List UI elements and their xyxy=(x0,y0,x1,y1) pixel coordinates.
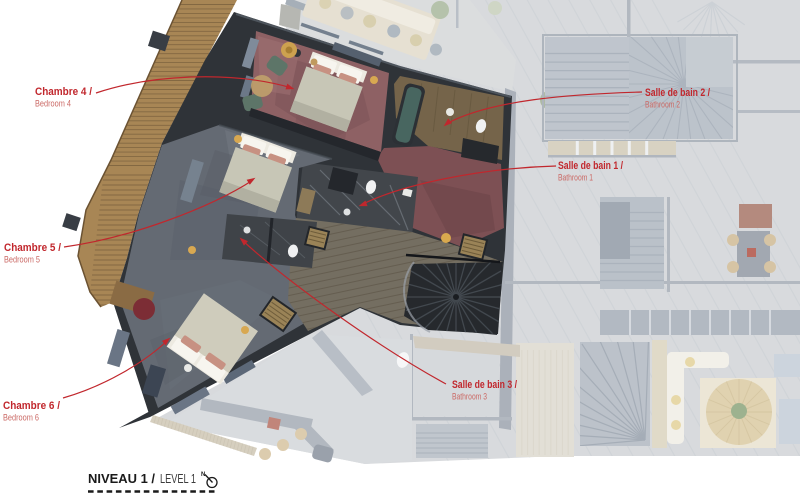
svg-text:Bathroom 1: Bathroom 1 xyxy=(558,173,593,184)
svg-text:Bathroom 2: Bathroom 2 xyxy=(645,100,680,111)
svg-text:Salle de bain 1 /: Salle de bain 1 / xyxy=(558,160,623,172)
svg-text:LEVEL 1: LEVEL 1 xyxy=(160,471,196,486)
svg-text:Bedroom 6: Bedroom 6 xyxy=(3,413,39,424)
svg-text:Bathroom 3: Bathroom 3 xyxy=(452,392,487,403)
svg-text:Bedroom 5: Bedroom 5 xyxy=(4,255,40,266)
svg-text:Bedroom 4: Bedroom 4 xyxy=(35,99,71,110)
svg-text:Chambre 5 /: Chambre 5 / xyxy=(4,242,61,254)
svg-text:NIVEAU 1 /: NIVEAU 1 / xyxy=(88,471,155,486)
svg-text:Salle de bain 3 /: Salle de bain 3 / xyxy=(452,379,517,391)
svg-text:Chambre 4 /: Chambre 4 / xyxy=(35,86,92,98)
svg-text:Chambre 6 /: Chambre 6 / xyxy=(3,400,60,412)
svg-text:N: N xyxy=(201,472,205,478)
svg-text:Salle de bain 2 /: Salle de bain 2 / xyxy=(645,87,710,99)
